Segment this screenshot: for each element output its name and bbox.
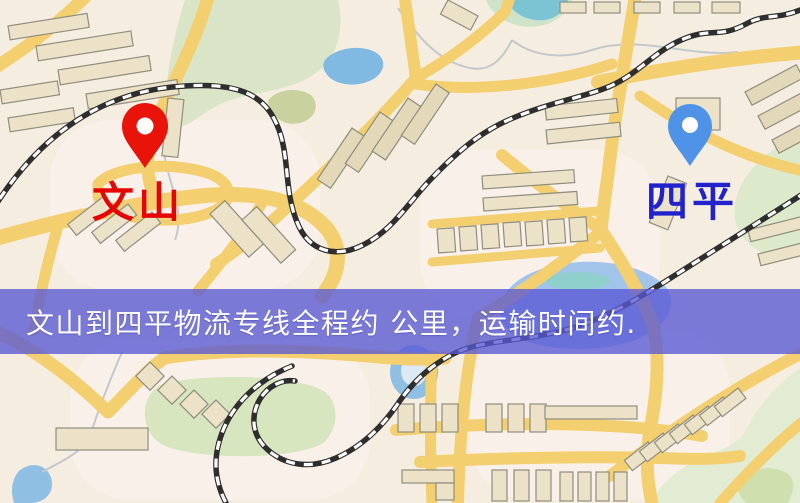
- destination-pin-icon[interactable]: [668, 104, 712, 166]
- route-info-banner: 文山到四平物流专线全程约 公里，运输时间约.: [0, 289, 800, 354]
- map-screenshot: 文山 四平 文山到四平物流专线全程约 公里，运输时间约.: [0, 0, 800, 503]
- destination-label: 四平: [646, 181, 738, 223]
- origin-label: 文山: [92, 182, 184, 224]
- map-canvas[interactable]: [0, 0, 800, 503]
- route-info-text: 文山到四平物流专线全程约 公里，运输时间约.: [26, 302, 637, 342]
